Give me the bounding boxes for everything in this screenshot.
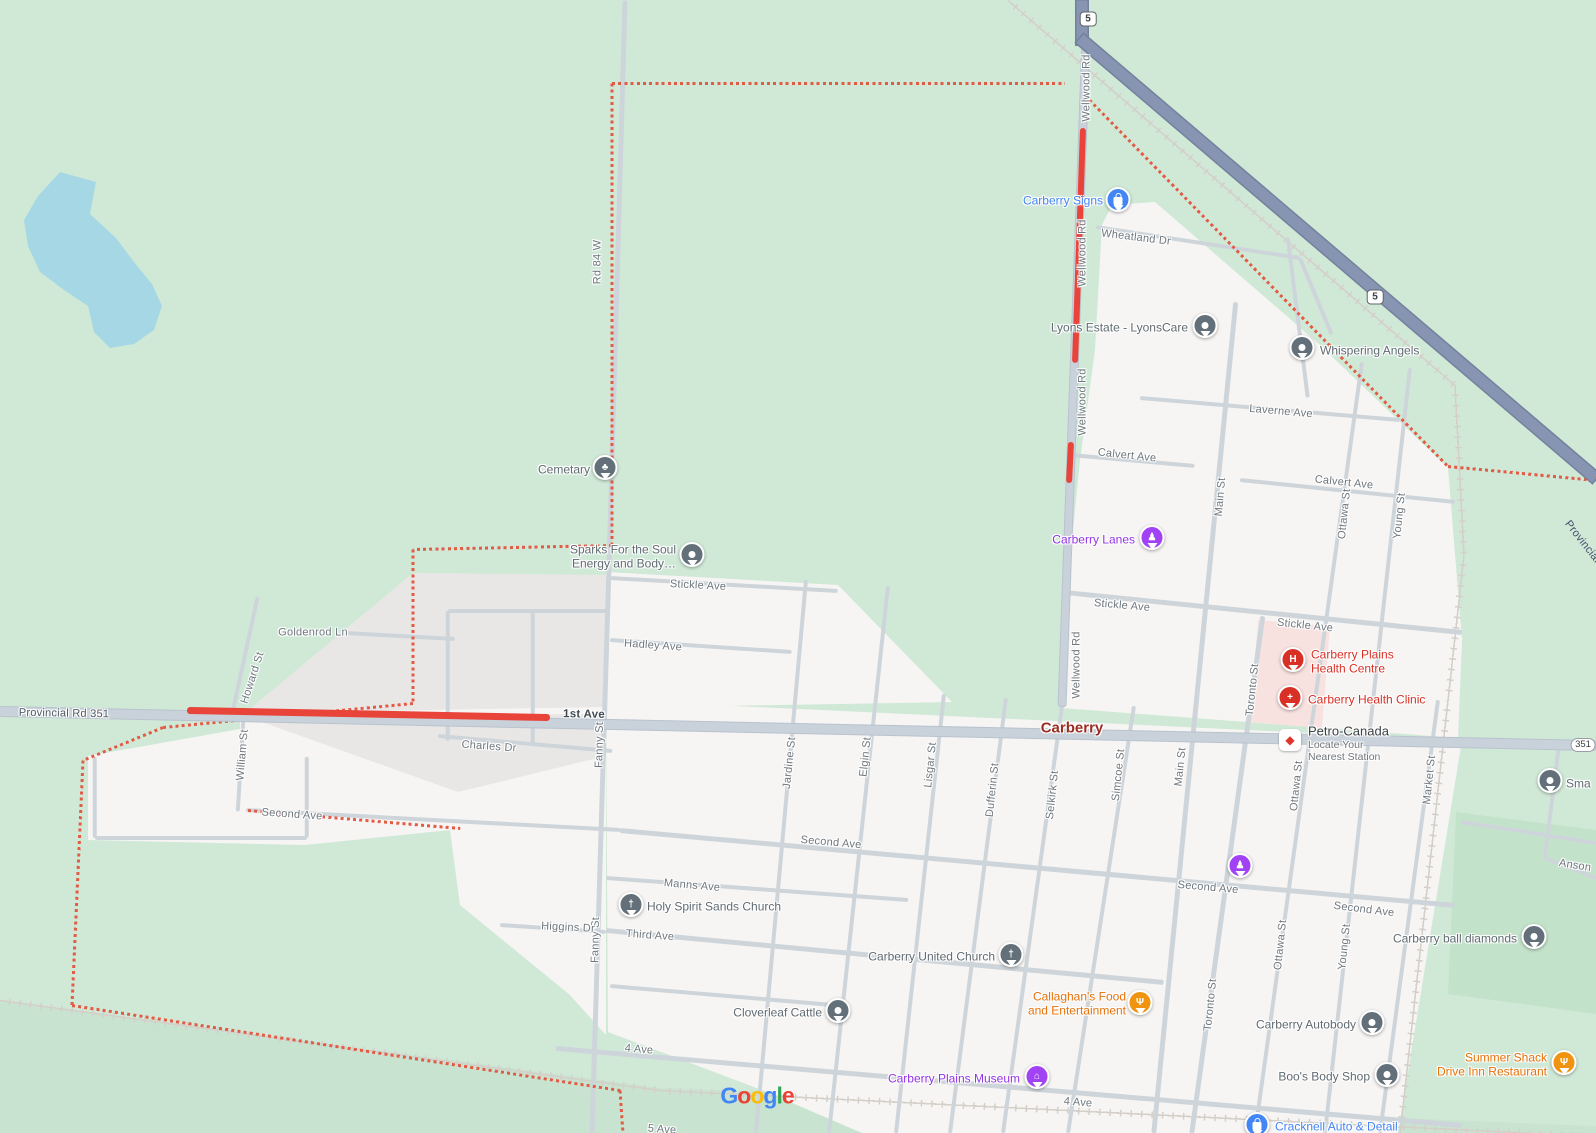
street-label: Toronto St [1203,978,1219,1032]
street-label: 4 Ave [1063,1096,1092,1109]
street-label: Calvert Ave [1097,447,1157,464]
sma-poi-label[interactable]: Sma [1566,777,1591,791]
road-u-loop-right [305,757,309,838]
google-logo-letter: e [782,1083,794,1109]
carberry-plains-museum-label[interactable]: Carberry Plains Museum [888,1072,1020,1086]
street-label: Higgins Dr [541,921,595,935]
carberry-united-church-label[interactable]: Carberry United Church [868,950,995,964]
road-fanny-st [590,565,612,1133]
street-label: Jardine St [782,737,798,790]
street-label: Goldenrod Ln [278,628,348,639]
road-goldenrod-ln [345,631,455,640]
carberry-autobody-pin[interactable] [1360,1010,1385,1035]
road-boundary-w5 [82,726,163,762]
boos-body-shop-pin[interactable] [1375,1062,1400,1087]
carberry-health-clinic-pin[interactable]: + [1278,685,1303,710]
cracknell-auto-detail-label[interactable]: Cracknell Auto & Detail [1275,1120,1398,1133]
street-label: 1st Ave [563,709,605,721]
petro-canada-label[interactable]: Petro-Canada [1308,724,1389,738]
street-label: Wellwood Rd [1078,368,1089,435]
google-logo[interactable]: Google [720,1083,793,1110]
google-logo-letter: g [763,1083,776,1109]
gray-lots-area-south [0,0,1596,1133]
street-label: Lisgar St [923,742,939,789]
street-label: Young St [1337,923,1353,970]
carberry-lanes-pin[interactable]: ♟ [1140,525,1165,550]
road-rail-curve [1452,385,1468,555]
road-boundary-w6 [71,760,85,1005]
urban-area-nw [0,0,1596,1133]
street-label: Anson [1558,858,1592,874]
cemetary-label[interactable]: Cemetary [538,463,590,477]
street-label: Young St [1392,492,1408,539]
boos-body-shop-label[interactable]: Boo's Body Shop [1278,1070,1370,1084]
street-label: Laverne Ave [1249,404,1313,421]
street-label: Rd 84 W [593,240,604,285]
road-boundary-s2 [619,1090,625,1133]
carberry-plains-health-centre-label[interactable]: Carberry PlainsHealth Centre [1311,649,1394,676]
urban-area-ne [0,0,1596,1133]
south-fields-area [0,0,1596,1133]
street-label: 4 Ave [624,1043,653,1056]
street-label: Manns Ave [663,878,720,894]
street-label: Dufferin St [985,762,1002,817]
town-label: Carberry [1041,720,1104,737]
street-label: Wellwood Rd [1082,54,1093,121]
cemetary-pin[interactable]: ♣ [593,455,618,480]
callaghans-food-pin[interactable]: Ψ [1128,990,1153,1015]
whispering-angels-pin[interactable] [1290,335,1315,360]
carberry-plains-health-centre-pin[interactable]: H [1281,647,1306,672]
road-u-loop-bottom [95,836,307,840]
sma-poi-pin[interactable] [1538,768,1563,793]
urban-area-town [0,0,1596,1133]
map-canvas[interactable]: Carberry Google Wellwood RdWellwood RdWe… [0,0,1596,1133]
summer-shack-label[interactable]: Summer ShackDrive Inn Restaurant [1437,1052,1547,1079]
street-label: Hadley Ave [624,638,683,653]
cloverleaf-cattle-pin[interactable] [826,998,851,1023]
sparks-for-the-soul-label[interactable]: Sparks For the SoulEnergy and Body… [570,544,676,571]
road-lisgar-st [894,694,946,1133]
road-main-st [1152,302,1238,1133]
street-label: Stickle Ave [1093,598,1150,614]
cloverleaf-cattle-label[interactable]: Cloverleaf Cattle [733,1006,822,1020]
street-label: Third Ave [625,929,674,943]
carberry-health-clinic-label[interactable]: Carberry Health Clinic [1308,693,1425,707]
street-label: Fanny St [594,722,606,768]
ball-diamonds-park [0,0,1596,1133]
street-label: 5 Ave [647,1124,676,1133]
street-label: Main St [1214,477,1228,517]
road-manns-ave [606,876,908,901]
petro-canada-sublabel: Locate YourNearest Station [1308,739,1380,763]
google-logo-letter: o [737,1083,750,1109]
street-label: Ottawa St [1273,919,1289,970]
road-elgin-st [827,586,890,1133]
callaghans-food-label[interactable]: Callaghan's Foodand Entertainment [1028,991,1126,1018]
hwy-5-shield-top: 5 [1080,12,1097,27]
carberry-autobody-label[interactable]: Carberry Autobody [1256,1018,1356,1032]
whispering-angels-label[interactable]: Whispering Angels [1320,344,1419,358]
cracknell-auto-detail-pin[interactable] [1245,1112,1270,1133]
hwy-5-shield-mid: 5 [1367,290,1384,305]
health-centre-block [0,0,1596,1133]
street-label: Selkirk St [1045,770,1061,820]
carberry-signs-label[interactable]: Carberry Signs [1023,194,1103,208]
street-label: Wellwood Rd [1072,631,1083,698]
urban-area-west [0,0,1596,1133]
summer-shack-pin[interactable]: Ψ [1552,1050,1577,1075]
route-351-shield: 351 [1571,738,1596,752]
street-label: Second Ave [1333,901,1395,919]
street-label: Wellwood Rd [1078,219,1089,286]
lake [0,0,1596,1133]
street-label: Charles Dr [461,740,517,755]
street-label: Second Ave [261,807,323,822]
road-boundary-s1 [72,1004,620,1092]
street-label: Wheatland Dr [1100,228,1171,247]
holy-spirit-sands-church-pin[interactable]: † [619,892,644,917]
road-rail-market-n [1445,555,1468,701]
sparks-for-the-soul-pin[interactable] [680,542,705,567]
second-ave-place-pin[interactable]: ♟ [1228,853,1253,878]
carberry-plains-museum-pin[interactable]: ⌂ [1025,1064,1050,1089]
road-anson-rd [1543,740,1561,858]
street-label: Ottawa St [1337,488,1353,539]
petro-canada-icon[interactable]: ◆ [1279,729,1301,751]
road-boundary-n [612,82,1065,85]
carberry-ball-diamonds-label[interactable]: Carberry ball diamonds [1393,932,1517,946]
street-label: Provincial Rd 351 [19,708,110,721]
road-u-loop-left [93,757,97,838]
lyons-estate-label[interactable]: Lyons Estate - LyonsCare [1051,321,1188,335]
google-logo-letter: o [750,1083,763,1109]
carberry-ball-diamonds-pin[interactable] [1522,924,1547,949]
road-simcoe-st [1066,706,1136,1133]
street-label: Elgin St [858,737,873,778]
gray-lots-area [0,0,1596,1133]
street-label: Provincial [1562,519,1596,565]
carberry-lanes-label[interactable]: Carberry Lanes [1052,533,1135,547]
google-logo-letter: G [720,1083,737,1109]
road-jardine-st [754,580,808,1133]
carberry-signs-pin[interactable] [1106,187,1131,212]
road-park-rd [1462,820,1596,844]
street-label: Toronto St [1245,663,1261,717]
lyons-estate-pin[interactable] [1193,313,1218,338]
road-boundary-w3 [412,549,415,702]
carberry-united-church-pin[interactable]: † [999,942,1024,967]
road-ave-stub [610,984,845,1007]
street-label: Stickle Ave [670,579,727,593]
road-west-loop-top [448,609,610,613]
street-label: William St [235,729,250,781]
holy-spirit-sands-church-label[interactable]: Holy Spirit Sands Church [647,900,781,914]
